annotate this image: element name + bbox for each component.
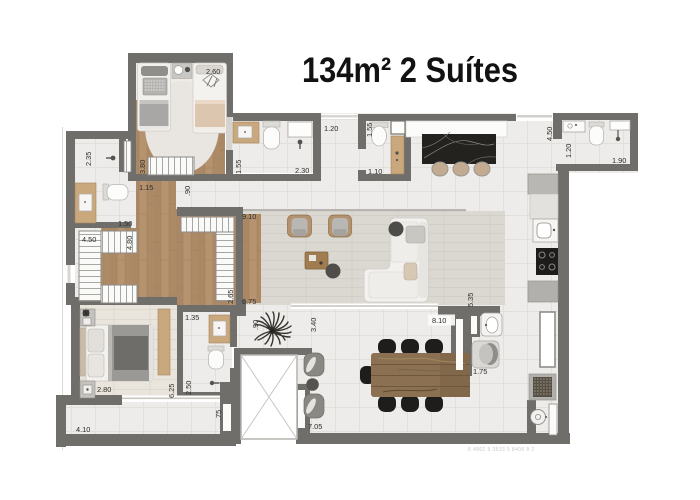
svg-text:4.50: 4.50 (82, 235, 96, 244)
svg-text:1.75: 1.75 (473, 367, 487, 376)
svg-text:3.80: 3.80 (138, 160, 147, 174)
svg-text:8.10: 8.10 (432, 316, 446, 325)
svg-text:.90: .90 (251, 320, 260, 330)
svg-text:7.05: 7.05 (308, 422, 322, 431)
svg-text:.75: .75 (214, 410, 223, 420)
svg-text:1.20: 1.20 (564, 144, 573, 158)
svg-text:9.10: 9.10 (242, 212, 256, 221)
svg-text:134m² 2 Suítes: 134m² 2 Suítes (302, 51, 518, 90)
svg-text:1.50: 1.50 (118, 219, 132, 228)
svg-text:2.30: 2.30 (295, 166, 309, 175)
svg-text:1.20: 1.20 (324, 124, 338, 133)
svg-text:2.50: 2.50 (184, 381, 193, 395)
svg-text:1.90: 1.90 (612, 156, 626, 165)
svg-text:1.15: 1.15 (139, 183, 153, 192)
svg-text:8 4862 5 3533 5 8406 8 2: 8 4862 5 3533 5 8406 8 2 (468, 447, 535, 453)
svg-text:2.60: 2.60 (206, 67, 220, 76)
svg-text:4.50: 4.50 (545, 127, 554, 141)
svg-text:2.35: 2.35 (84, 152, 93, 166)
svg-text:4.80: 4.80 (125, 236, 134, 250)
svg-text:1.10: 1.10 (368, 167, 382, 176)
svg-text:3.40: 3.40 (309, 318, 318, 332)
svg-text:2.80: 2.80 (97, 385, 111, 394)
svg-text:4.10: 4.10 (76, 425, 90, 434)
svg-text:1.55: 1.55 (365, 123, 374, 137)
svg-text:1.55: 1.55 (234, 160, 243, 174)
svg-text:5.35: 5.35 (466, 293, 475, 307)
svg-text:6.75: 6.75 (242, 297, 256, 306)
svg-text:.90: .90 (183, 186, 192, 196)
svg-text:2.65: 2.65 (226, 290, 235, 304)
svg-text:1.35: 1.35 (185, 313, 199, 322)
svg-text:6.25: 6.25 (167, 384, 176, 398)
